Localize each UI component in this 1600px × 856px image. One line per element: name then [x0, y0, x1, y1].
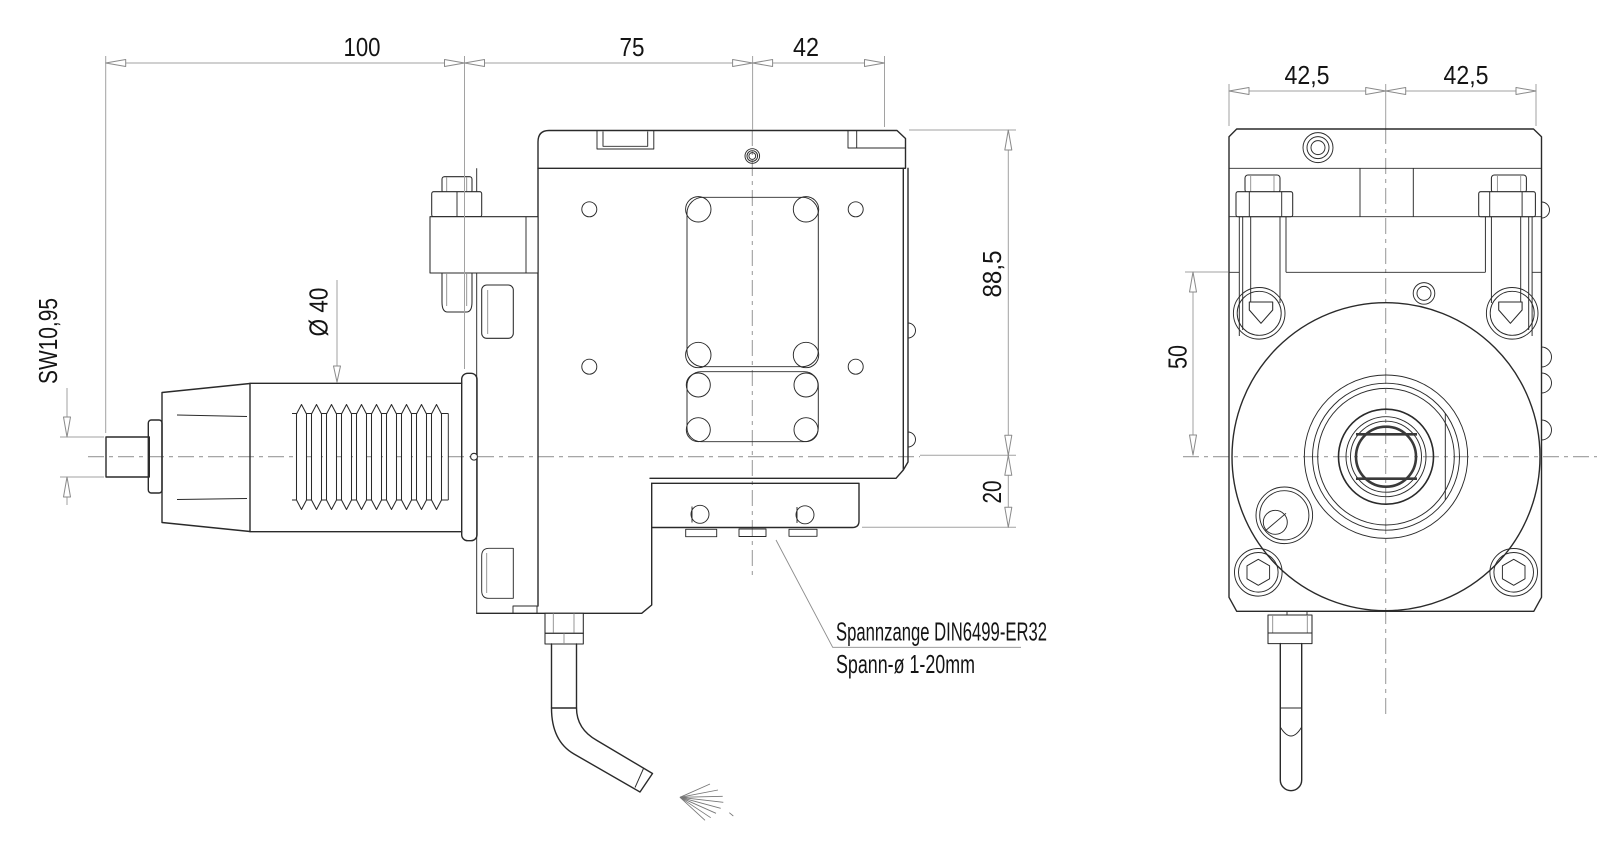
dim-50-label: 50 — [1163, 345, 1193, 369]
bottom-step — [513, 606, 537, 613]
callout-note: Spannzange DIN6499-ER32 Spann-ø 1-20mm — [776, 540, 1047, 679]
bottom-flange — [652, 483, 859, 536]
dim-75-label: 75 — [620, 32, 645, 62]
dim-42-5-left-label: 42,5 — [1285, 60, 1330, 90]
dim-dia40-label: Ø 40 — [304, 288, 334, 337]
top-plate — [538, 131, 906, 169]
top-plate-left-notch — [597, 131, 654, 150]
callout-line2: Spann-ø 1-20mm — [836, 649, 975, 679]
center-point — [471, 453, 478, 460]
side-block-upper — [482, 285, 514, 338]
lower-left-block — [482, 548, 514, 598]
body-outline — [538, 168, 908, 606]
center-block — [1360, 168, 1413, 216]
bottom-left-socket-screw — [1235, 549, 1283, 597]
front-right-edge-pins — [1542, 202, 1552, 440]
top-screw — [745, 149, 760, 164]
dim-20-label: 20 — [977, 481, 1007, 504]
callout-line1: Spannzange DIN6499-ER32 — [836, 617, 1047, 647]
coolant-nozzle — [545, 613, 653, 792]
collet-nut — [162, 384, 250, 532]
technical-drawing: 100 75 42 42,5 42,5 88,5 20 50 SW10,95 Ø… — [0, 0, 1600, 856]
spray-fan-icon — [680, 784, 733, 820]
slotted-screw — [1256, 487, 1313, 544]
dim-42-5-right-label: 42,5 — [1444, 60, 1489, 90]
dim-100-label: 100 — [344, 32, 381, 62]
top-plate-right-notch — [848, 131, 906, 149]
right-edge-pins — [908, 323, 916, 447]
side-view — [106, 131, 916, 821]
cap-screw — [1303, 133, 1333, 163]
dim-88-5-label: 88,5 — [977, 251, 1007, 298]
front-left-bolt — [1233, 175, 1292, 339]
dim-42-label: 42 — [793, 32, 819, 62]
dim-sw-label: SW10,95 — [33, 298, 63, 384]
face-corner-holes — [582, 202, 863, 374]
front-view — [1229, 129, 1552, 791]
bottom-right-socket-screw — [1490, 549, 1538, 597]
front-right-bolt — [1479, 175, 1538, 339]
nose-cylinder — [250, 383, 462, 531]
drawing-canvas: 100 75 42 42,5 42,5 88,5 20 50 SW10,95 Ø… — [0, 0, 1600, 856]
small-set-screw — [1413, 283, 1435, 305]
front-nozzle — [1268, 611, 1312, 790]
dimension-layer: 100 75 42 42,5 42,5 88,5 20 50 SW10,95 Ø… — [33, 32, 1536, 527]
